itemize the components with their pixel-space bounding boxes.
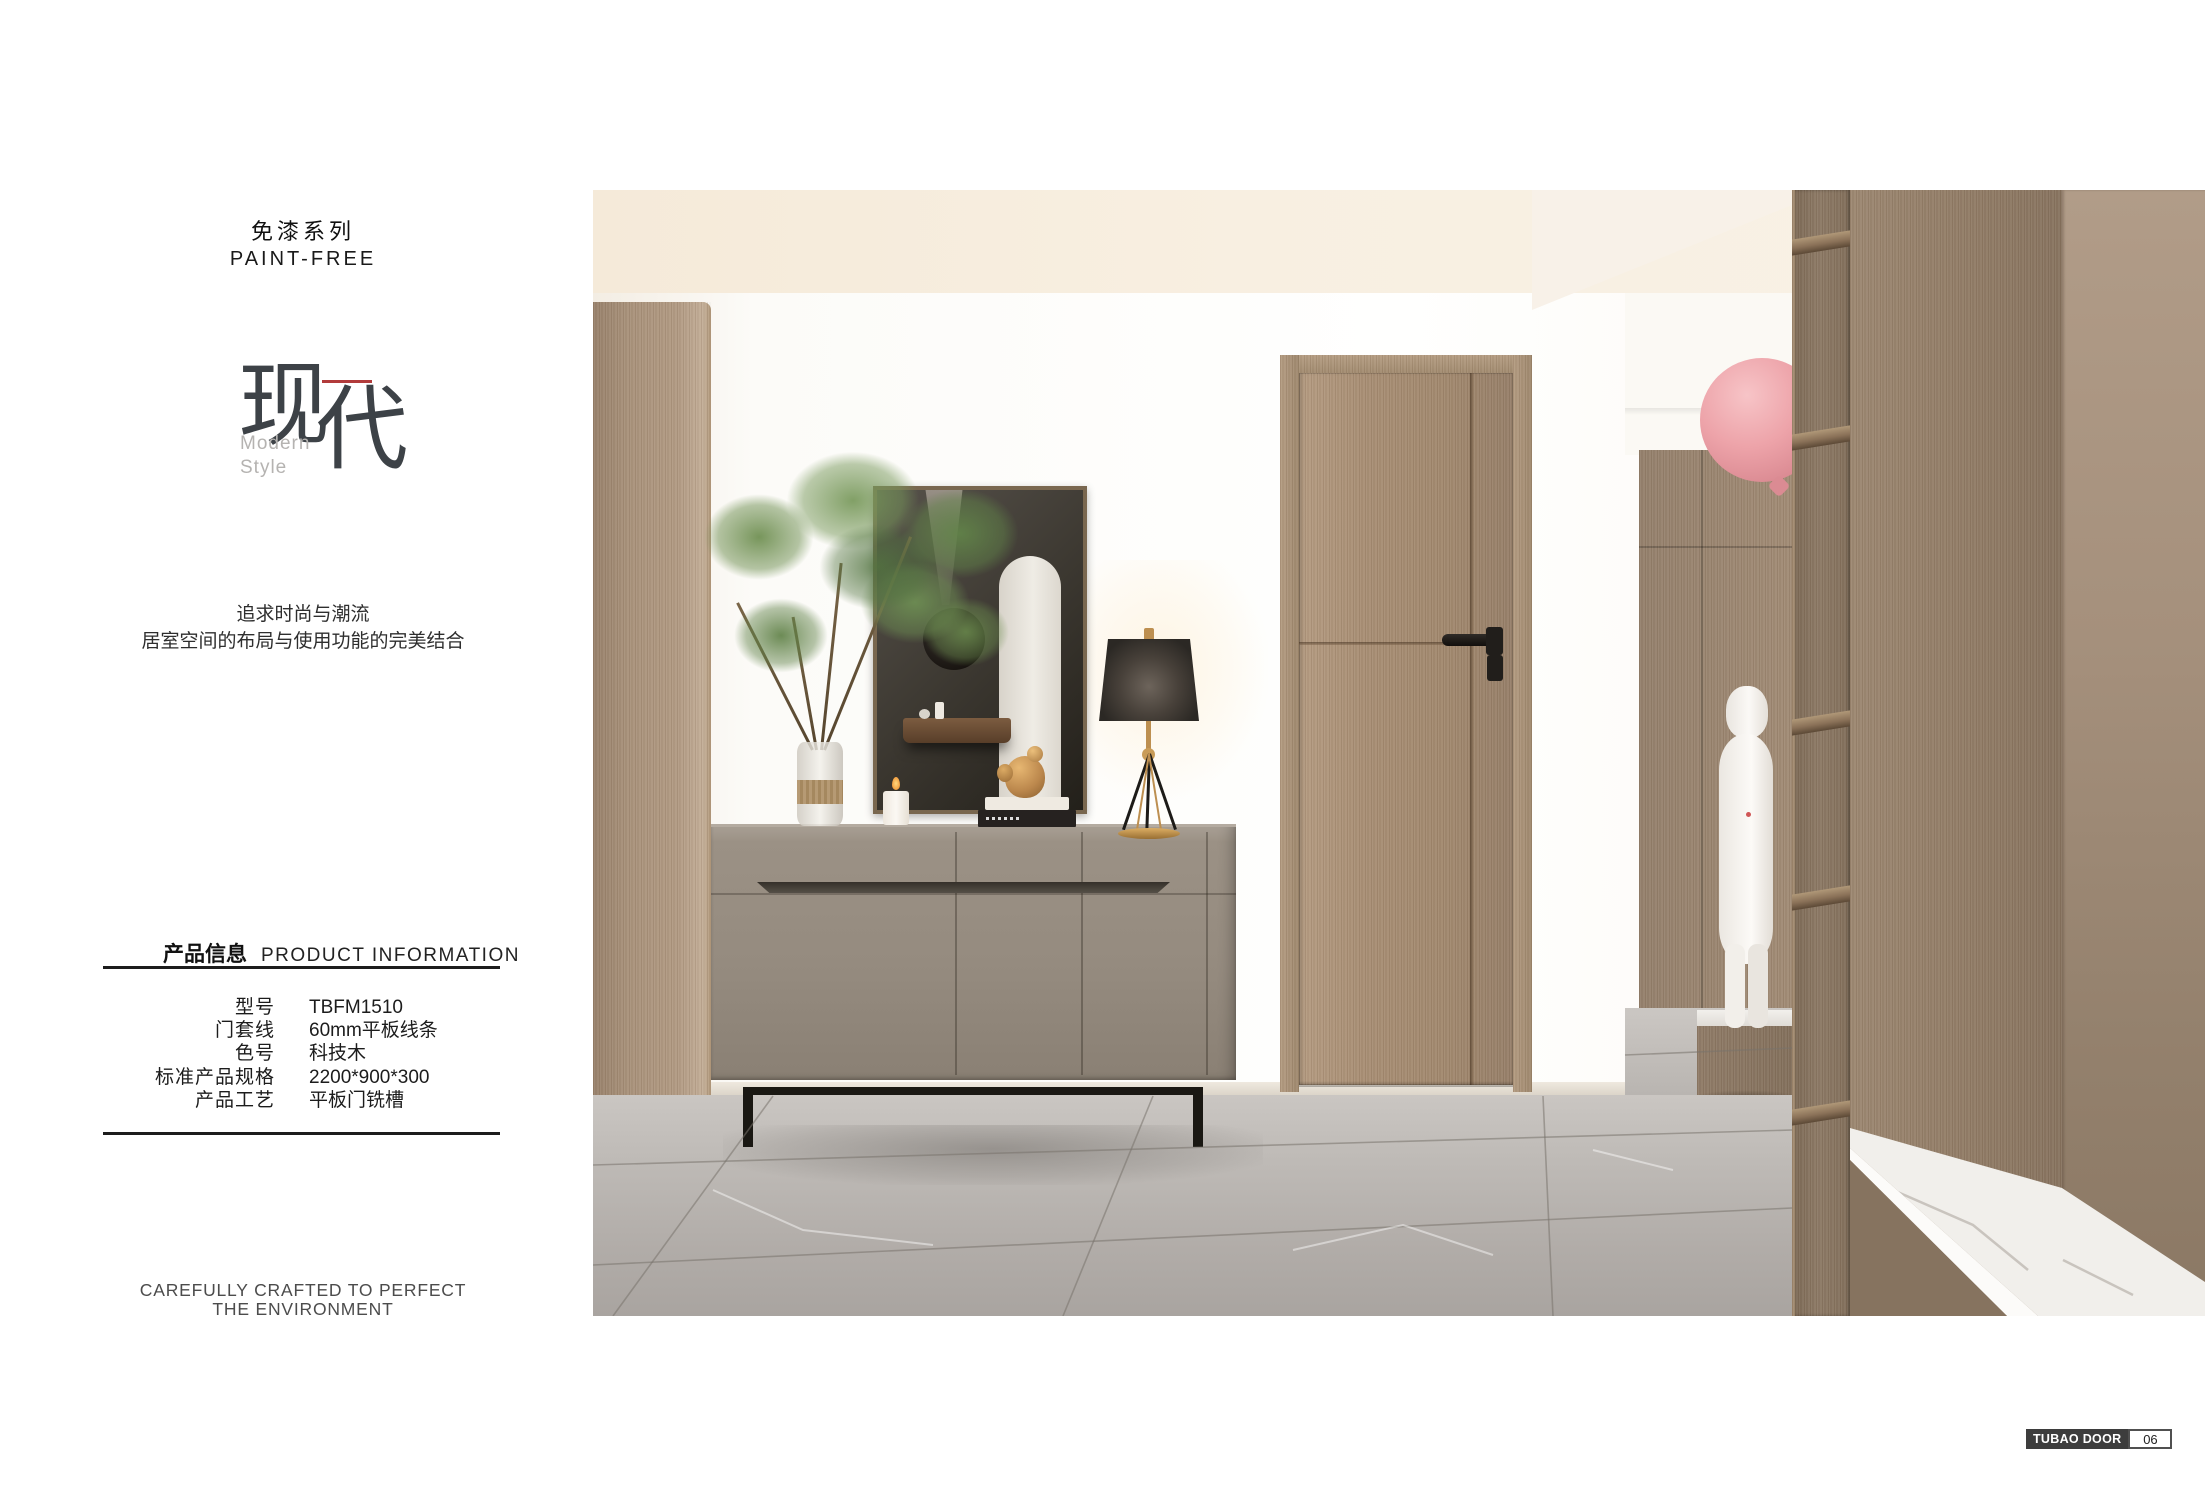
series-title-cn: 免漆系列 xyxy=(153,218,453,246)
open-shelf-unit xyxy=(1792,190,1850,1316)
spec-table: 型号 TBFM1510 门套线 60mm平板线条 色号 科技木 标准产品规格 2… xyxy=(103,996,500,1112)
logo-char-dai: 代 xyxy=(316,384,408,476)
lamp-shade xyxy=(1099,639,1199,721)
catalog-page: 免漆系列 PAINT-FREE 现 代 Modern Style 追求时尚与潮流… xyxy=(0,0,2205,1496)
lamp-leg xyxy=(1148,754,1176,830)
rule-bottom xyxy=(103,1132,500,1135)
spec-value: 科技木 xyxy=(309,1042,366,1065)
tagline-line-1: 追求时尚与潮流 xyxy=(103,601,503,628)
door-frame-left xyxy=(1280,355,1299,1092)
statue-red-dot xyxy=(1746,812,1751,817)
badge-brand: TUBAO DOOR xyxy=(2026,1429,2128,1449)
series-title: 免漆系列 PAINT-FREE xyxy=(153,218,453,273)
sideboard-drawer-seam xyxy=(711,893,1236,895)
wardrobe-cabinet xyxy=(1850,190,2062,1316)
spec-row: 门套线 60mm平板线条 xyxy=(103,1019,500,1042)
lamp-base xyxy=(1118,828,1180,839)
spec-value: 60mm平板线条 xyxy=(309,1019,438,1042)
door-frame-right xyxy=(1513,355,1532,1092)
statue-leg xyxy=(1725,944,1745,1028)
statue-head xyxy=(1726,686,1768,738)
brand-style-logo: 现 代 Modern Style xyxy=(240,366,390,506)
candle xyxy=(883,791,909,825)
spec-label: 产品工艺 xyxy=(103,1089,275,1112)
door-slab xyxy=(1299,373,1513,1085)
sideboard xyxy=(711,824,1236,1080)
tagline: 追求时尚与潮流 居室空间的布局与使用功能的完美结合 xyxy=(103,601,503,655)
product-info-header-cn: 产品信息 xyxy=(163,938,247,968)
scene-photo xyxy=(593,190,2205,1316)
series-title-en: PAINT-FREE xyxy=(153,246,453,273)
sideboard-seam xyxy=(1081,832,1083,1075)
artwork-deco xyxy=(935,702,944,719)
logo-subtitle-modern: Modern xyxy=(240,432,310,455)
page-badge: TUBAO DOOR 06 xyxy=(2026,1429,2172,1449)
book xyxy=(978,810,1076,827)
lamp-stem xyxy=(1146,721,1151,751)
sideboard-leg xyxy=(1193,1087,1203,1147)
sideboard-leg-bar xyxy=(743,1087,1203,1095)
spec-row: 色号 科技木 xyxy=(103,1042,500,1065)
product-info-header: 产品信息 PRODUCT INFORMATION xyxy=(163,938,520,968)
candle-flame xyxy=(892,777,900,790)
artwork-console xyxy=(903,718,1011,743)
door-lock xyxy=(1487,655,1503,681)
sideboard-floor-shadow xyxy=(723,1125,1263,1185)
gold-sculpture-figurine xyxy=(997,746,1051,800)
footer-slogan-line-2: THE ENVIRONMENT xyxy=(103,1300,503,1319)
door-vertical-groove xyxy=(1470,373,1473,1085)
sideboard-seam xyxy=(1206,832,1208,1075)
artwork-deco xyxy=(919,709,930,719)
logo-subtitle-style: Style xyxy=(240,456,287,479)
door-handle-rose xyxy=(1486,627,1503,655)
sideboard-leg xyxy=(743,1087,753,1147)
wood-wall-panel xyxy=(593,302,711,1103)
statue-body xyxy=(1719,734,1773,964)
statue-leg xyxy=(1748,944,1768,1028)
rule-top xyxy=(103,966,500,969)
spec-label: 标准产品规格 xyxy=(103,1066,275,1089)
gold-figure-head xyxy=(1027,746,1043,762)
interior-door xyxy=(1280,355,1532,1092)
plant-foliage xyxy=(803,512,953,622)
vase-rope-band xyxy=(797,780,843,804)
spec-value: 2200*900*300 xyxy=(309,1066,429,1089)
footer-slogan: CAREFULLY CRAFTED TO PERFECT THE ENVIRON… xyxy=(103,1281,503,1319)
spec-label: 色号 xyxy=(103,1042,275,1065)
right-wall xyxy=(2062,190,2205,1316)
door-frame-top xyxy=(1280,355,1532,373)
product-info-header-en: PRODUCT INFORMATION xyxy=(261,945,520,967)
table-lamp xyxy=(1091,628,1207,840)
spec-row: 型号 TBFM1510 xyxy=(103,996,500,1019)
footer-slogan-line-1: CAREFULLY CRAFTED TO PERFECT xyxy=(103,1281,503,1300)
gold-figure-knee xyxy=(997,764,1013,782)
badge-page-number: 06 xyxy=(2128,1429,2172,1449)
spec-row: 标准产品规格 2200*900*300 xyxy=(103,1066,500,1089)
glass-vase xyxy=(797,742,843,826)
spec-value: 平板门铣槽 xyxy=(309,1089,404,1112)
spec-value: TBFM1510 xyxy=(309,996,403,1019)
display-platform-front xyxy=(1697,1026,1792,1096)
sideboard-seam xyxy=(955,832,957,1075)
door-handle xyxy=(1442,634,1492,646)
spec-label: 门套线 xyxy=(103,1019,275,1042)
tagline-line-2: 居室空间的布局与使用功能的完美结合 xyxy=(103,628,503,655)
spec-row: 产品工艺 平板门铣槽 xyxy=(103,1089,500,1112)
white-figurine-statue xyxy=(1717,686,1775,1032)
door-bottom-shadow xyxy=(1299,1081,1513,1087)
spec-label: 型号 xyxy=(103,996,275,1019)
sideboard-handle-groove xyxy=(757,882,1170,893)
